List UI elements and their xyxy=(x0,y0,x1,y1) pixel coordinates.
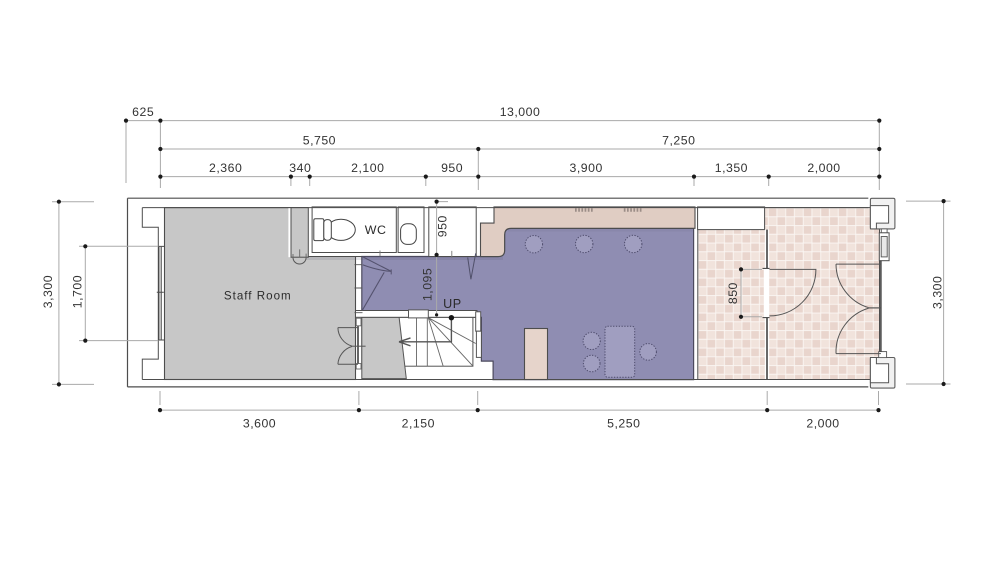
svg-text:3,600: 3,600 xyxy=(243,417,276,431)
svg-text:WC: WC xyxy=(365,223,387,237)
svg-text:Staff Room: Staff Room xyxy=(224,289,292,302)
svg-text:850: 850 xyxy=(726,282,740,304)
svg-text:2,360: 2,360 xyxy=(209,161,242,175)
svg-text:13,000: 13,000 xyxy=(500,105,541,119)
svg-text:5,750: 5,750 xyxy=(303,134,336,148)
svg-text:2,150: 2,150 xyxy=(402,417,435,431)
svg-text:340: 340 xyxy=(289,161,311,175)
svg-text:3,300: 3,300 xyxy=(931,276,945,309)
svg-text:1,700: 1,700 xyxy=(70,275,84,308)
svg-text:3,900: 3,900 xyxy=(570,161,603,175)
svg-text:7,250: 7,250 xyxy=(662,134,695,148)
svg-text:2,000: 2,000 xyxy=(807,161,840,175)
svg-text:2,000: 2,000 xyxy=(806,417,839,431)
svg-text:5,250: 5,250 xyxy=(607,417,640,431)
svg-text:1,350: 1,350 xyxy=(715,161,748,175)
svg-text:2,100: 2,100 xyxy=(351,161,384,175)
svg-text:UP: UP xyxy=(443,297,462,311)
svg-text:950: 950 xyxy=(436,215,450,237)
svg-text:3,300: 3,300 xyxy=(41,275,55,308)
svg-text:625: 625 xyxy=(132,105,154,119)
svg-text:950: 950 xyxy=(441,161,463,175)
svg-text:1,095: 1,095 xyxy=(421,268,435,301)
